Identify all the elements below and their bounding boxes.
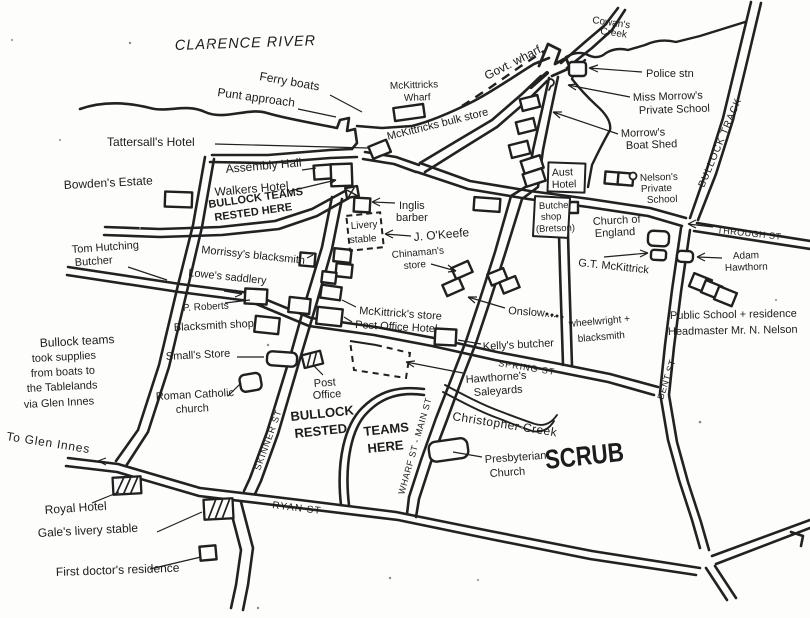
svg-text:Wharf: Wharf <box>404 92 431 104</box>
svg-text:Public School + residence: Public School + residence <box>670 308 797 322</box>
svg-text:shop: shop <box>541 211 562 223</box>
svg-text:McKittricks: McKittricks <box>390 79 439 92</box>
svg-text:England: England <box>595 226 636 240</box>
svg-text:church: church <box>176 402 210 416</box>
svg-text:(Bretson): (Bretson) <box>536 223 575 235</box>
svg-text:Tattersall's Hotel: Tattersall's Hotel <box>107 135 195 149</box>
svg-text:Butcher: Butcher <box>539 200 572 212</box>
svg-text:Inglis: Inglis <box>399 200 425 212</box>
svg-text:Aust: Aust <box>552 166 573 179</box>
svg-text:School: School <box>647 194 678 206</box>
svg-text:Headmaster Mr. N. Nelson: Headmaster Mr. N. Nelson <box>668 324 798 338</box>
svg-text:Private School: Private School <box>639 103 710 117</box>
svg-text:Private: Private <box>641 183 673 195</box>
svg-text:Hotel: Hotel <box>552 178 577 191</box>
svg-text:Livery: Livery <box>350 219 377 232</box>
svg-text:Adam: Adam <box>733 250 759 262</box>
svg-text:Office: Office <box>312 388 341 402</box>
svg-text:Nelson's: Nelson's <box>640 172 678 184</box>
svg-text:Miss Morrow's: Miss Morrow's <box>633 90 704 104</box>
svg-text:Hawthorn: Hawthorn <box>725 262 768 274</box>
svg-text:stable: stable <box>349 233 377 246</box>
svg-text:Church: Church <box>489 466 525 480</box>
svg-text:Police stn: Police stn <box>646 68 694 80</box>
svg-text:Boat Shed: Boat Shed <box>626 138 678 152</box>
svg-text:store: store <box>403 259 427 272</box>
svg-text:barber: barber <box>396 212 428 224</box>
